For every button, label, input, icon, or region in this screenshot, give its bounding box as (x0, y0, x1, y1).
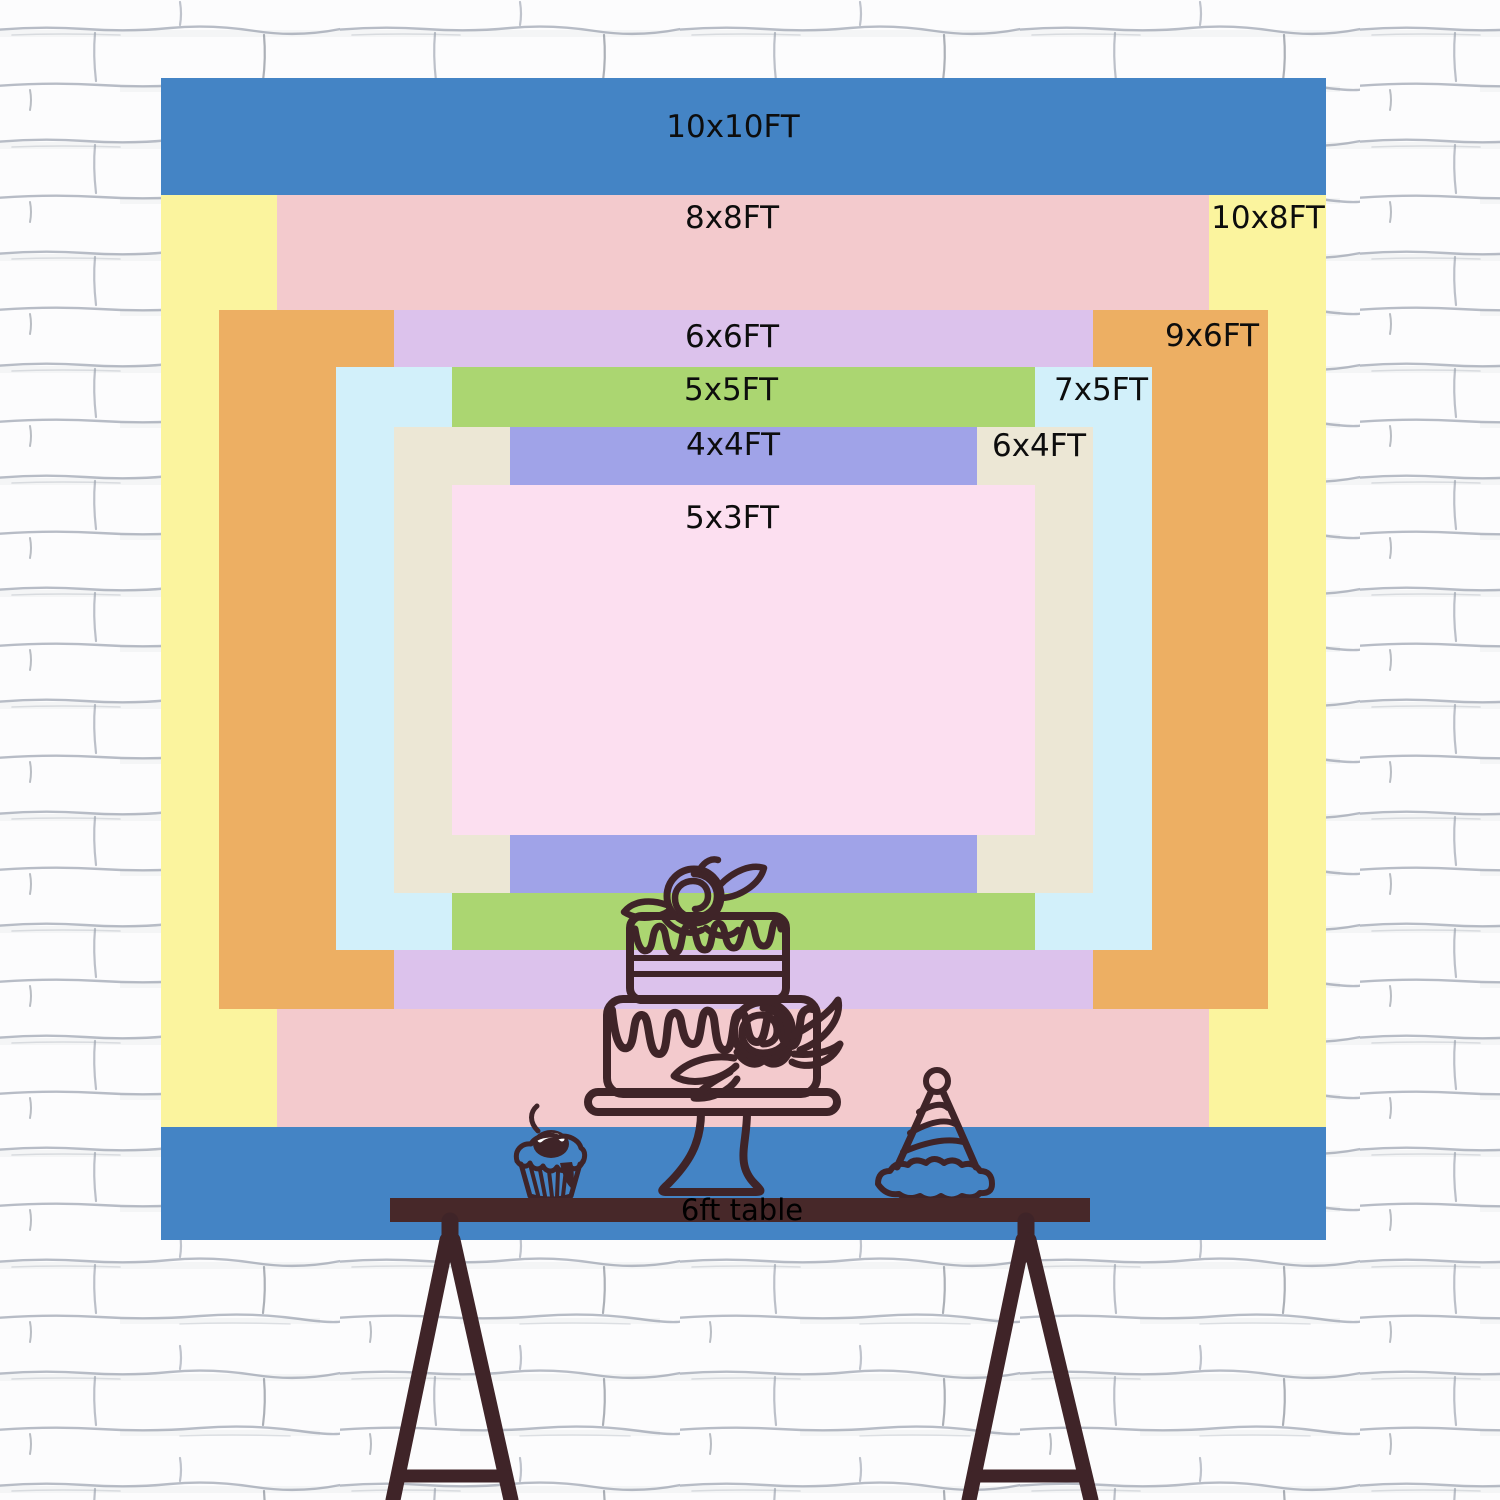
table-right-trestle (969, 1221, 1091, 1500)
label-10x10ft: 10x10FT (666, 109, 799, 145)
backdrop-size-chart-page: { "colors": { "ink": "#3f2428", "table":… (0, 0, 1500, 1500)
label-8x8ft: 8x8FT (685, 200, 779, 236)
cupcake-icon (516, 1106, 584, 1199)
label-10x8ft: 10x8FT (1211, 200, 1325, 236)
party-hat-icon (878, 1070, 992, 1200)
table-length-label: 6ft table (681, 1193, 803, 1227)
label-4x4ft: 4x4FT (686, 427, 780, 463)
label-5x5ft: 5x5FT (684, 372, 778, 408)
label-6x6ft: 6x6FT (685, 319, 779, 355)
label-5x3ft: 5x3FT (685, 500, 779, 536)
label-7x5ft: 7x5FT (1054, 372, 1148, 408)
cake-stand-icon (588, 1092, 837, 1192)
table-left-trestle (393, 1221, 511, 1500)
label-6x4ft: 6x4FT (992, 428, 1086, 464)
label-9x6ft: 9x6FT (1165, 318, 1259, 354)
